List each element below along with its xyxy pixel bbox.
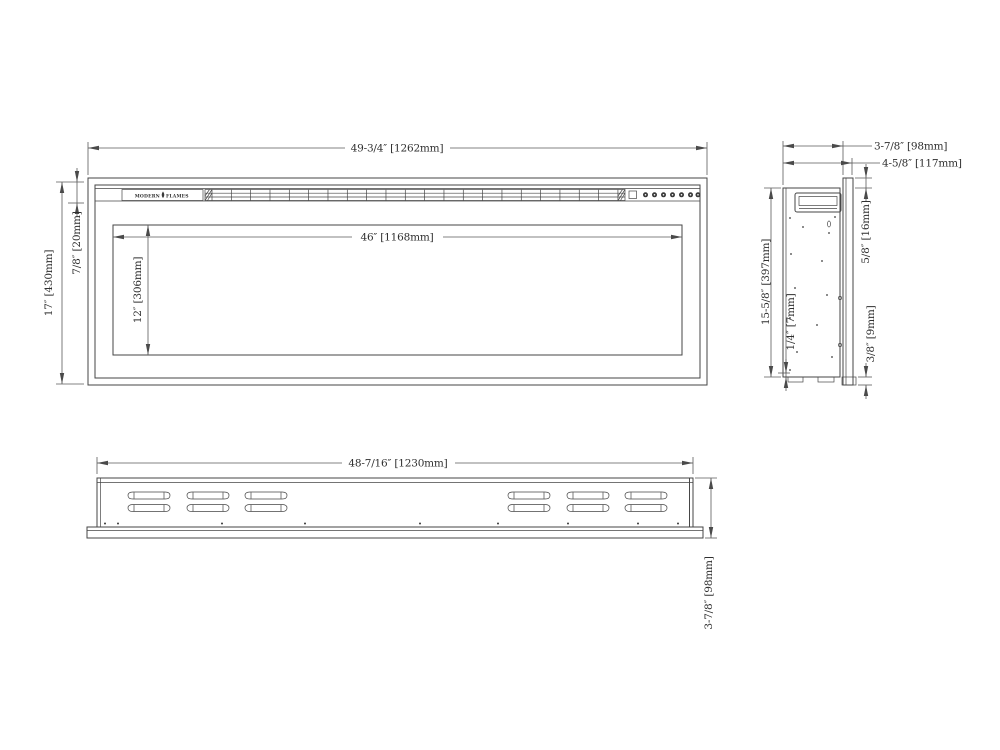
- dim-side-bottom-gap: 1/4″ [7mm]: [785, 293, 797, 350]
- dim-front-viewing-width: 46″ [1168mm]: [360, 232, 433, 244]
- dim-front-overall-width: 49-3/4″ [1262mm]: [351, 143, 444, 155]
- bottom-view: 48-7/16″ [1230mm] 3-7/8″ [98mm]: [87, 457, 717, 630]
- glass-bottom-lip: [842, 377, 856, 385]
- dim-bottom-body-depth: 3-7/8″ [98mm]: [703, 556, 715, 629]
- screw-hole: [637, 523, 639, 525]
- dim-side-bottom-lip: 3/8″ [9mm]: [865, 305, 877, 362]
- bottom-screw-holes: [104, 523, 679, 525]
- dim-side-front-lip: 5/8″ [16mm]: [860, 200, 872, 264]
- screw-hole: [304, 523, 306, 525]
- screw-hole: [789, 369, 791, 371]
- screw-hole: [497, 523, 499, 525]
- screw-hole: [789, 217, 791, 219]
- screw-hole: [826, 294, 828, 296]
- side-glass-panel: [843, 178, 853, 385]
- screw-hole: [821, 260, 823, 262]
- dim-front-viewing-height: 12″ [306mm]: [132, 257, 144, 324]
- control-button-center: [672, 194, 674, 196]
- bottom-body: [97, 478, 693, 527]
- screw-hole: [104, 523, 106, 525]
- display-window-icon: [629, 191, 637, 199]
- screw-hole: [790, 253, 792, 255]
- screw-hole: [816, 324, 818, 326]
- technical-drawing: MODERN FLAMES 49-3/4″ [1262mm] 46″ [1168…: [0, 0, 1000, 750]
- front-view: MODERN FLAMES 49-3/4″ [1262mm] 46″ [1168…: [43, 142, 707, 385]
- junction-box: [795, 193, 841, 212]
- front-inner-frame: [95, 185, 700, 378]
- dim-side-body-height: 15-5/8″ [397mm]: [760, 239, 772, 325]
- control-button-center: [654, 194, 656, 196]
- bottom-vents: [128, 492, 667, 512]
- side-view: 3-7/8″ [98mm] 4-5/8″ [117mm] 5/8″ [16mm]…: [760, 141, 962, 400]
- grille-outline: [205, 190, 625, 201]
- side-foot-left: [788, 377, 803, 382]
- brand-logo: MODERN FLAMES: [122, 190, 203, 201]
- vent-grille-icon: [205, 190, 625, 201]
- dim-bottom-body-width: 48-7/16″ [1230mm]: [348, 458, 447, 470]
- dim-side-overall-depth: 4-5/8″ [117mm]: [882, 158, 962, 170]
- viewing-window: [113, 225, 682, 355]
- side-foot-right: [818, 377, 834, 382]
- screw-hole: [419, 523, 421, 525]
- cable-slot: [828, 221, 831, 227]
- screw-hole: [567, 523, 569, 525]
- screw-hole: [831, 356, 833, 358]
- control-button-center: [690, 194, 692, 196]
- dim-side-body-depth: 3-7/8″ [98mm]: [874, 141, 947, 153]
- front-flange-plate: [87, 527, 703, 538]
- screw-hole: [802, 226, 804, 228]
- control-button-center: [681, 194, 683, 196]
- screw-hole: [794, 287, 796, 289]
- dim-front-top-bezel: 7/8″ [20mm]: [71, 211, 83, 275]
- control-button-center: [663, 194, 665, 196]
- flame-icon: [162, 192, 165, 199]
- screw-hole: [677, 523, 679, 525]
- control-buttons: [629, 191, 701, 199]
- screw-hole: [221, 523, 223, 525]
- fireplace-spec-sheet: MODERN FLAMES 49-3/4″ [1262mm] 46″ [1168…: [0, 0, 1000, 750]
- junction-box-opening: [799, 197, 837, 206]
- front-outer-frame: [88, 178, 707, 385]
- control-button-center: [697, 194, 699, 196]
- screw-hole: [834, 216, 836, 218]
- screw-hole: [117, 523, 119, 525]
- control-button-center: [645, 194, 647, 196]
- brand-logo-text-right: FLAMES: [166, 194, 189, 200]
- brand-logo-text-left: MODERN: [135, 194, 160, 200]
- screw-hole: [828, 232, 830, 234]
- dim-front-overall-height: 17″ [430mm]: [43, 250, 55, 317]
